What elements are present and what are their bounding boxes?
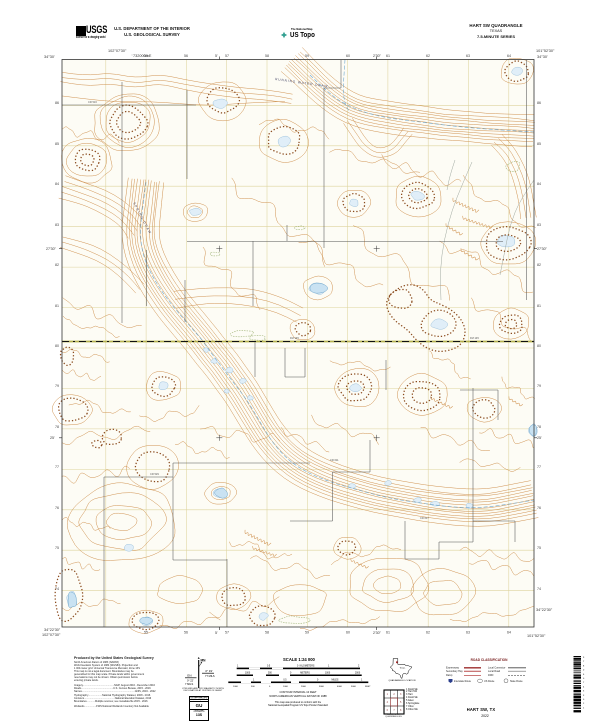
svg-text:75: 75 [55, 546, 59, 550]
svg-text:4000: 4000 [337, 686, 343, 688]
svg-text:5: 5 [583, 691, 585, 693]
svg-text:MILES: MILES [332, 680, 339, 682]
svg-text:FM 145: FM 145 [470, 336, 479, 340]
svg-text:KILOMETERS: KILOMETERS [300, 665, 315, 667]
svg-text:83: 83 [537, 223, 541, 227]
svg-text:76: 76 [537, 506, 541, 510]
svg-text:0° 22': 0° 22' [187, 679, 194, 683]
svg-text:State Route: State Route [510, 680, 523, 683]
svg-text:27'30": 27'30" [537, 247, 548, 251]
svg-text:76: 76 [55, 506, 59, 510]
svg-text:78: 78 [537, 425, 541, 429]
svg-text:Secondary Hwy: Secondary Hwy [446, 670, 464, 673]
svg-text:61: 61 [386, 631, 390, 635]
svg-text:CR 611: CR 611 [330, 458, 339, 462]
svg-text:2000: 2000 [355, 673, 361, 675]
svg-text:0: 0 [317, 680, 319, 682]
svg-text:77: 77 [537, 465, 541, 469]
svg-text:500: 500 [251, 686, 255, 688]
svg-text:MN: MN [201, 659, 207, 663]
svg-text:1: 1 [361, 680, 363, 682]
svg-text:63: 63 [466, 54, 470, 58]
svg-text:60: 60 [346, 631, 350, 635]
svg-text:83: 83 [55, 223, 59, 227]
svg-text:74: 74 [55, 587, 59, 591]
svg-text:0.5: 0.5 [267, 665, 271, 667]
svg-text:METERS: METERS [300, 673, 310, 675]
svg-text:3: 3 [583, 695, 585, 697]
svg-text:2: 2 [583, 703, 585, 705]
svg-text:FEET: FEET [365, 686, 371, 688]
svg-text:64: 64 [507, 54, 511, 58]
svg-text:74: 74 [537, 587, 541, 591]
svg-text:59: 59 [305, 631, 309, 635]
svg-text:1000: 1000 [325, 673, 331, 675]
svg-text:GN: GN [187, 674, 192, 678]
svg-text:7: 7 [583, 682, 585, 684]
svg-text:2000: 2000 [301, 686, 307, 688]
svg-text:59: 59 [305, 54, 309, 58]
svg-text:81: 81 [55, 304, 59, 308]
svg-text:27'30": 27'30" [46, 247, 57, 251]
svg-text:2'30": 2'30" [373, 54, 382, 58]
svg-text:25': 25' [537, 436, 542, 440]
svg-text:62: 62 [426, 631, 430, 635]
svg-text:6: 6 [583, 674, 585, 676]
svg-text:1000: 1000 [245, 673, 251, 675]
svg-text:56: 56 [184, 54, 188, 58]
svg-text:FM 145: FM 145 [290, 336, 299, 340]
svg-text:61: 61 [386, 54, 390, 58]
svg-text:77 MILS: 77 MILS [205, 674, 215, 678]
svg-text:0: 0 [269, 686, 271, 688]
svg-text:Interstate Route: Interstate Route [454, 680, 472, 683]
svg-text:57: 57 [225, 631, 229, 635]
svg-text:1000: 1000 [283, 686, 289, 688]
svg-text:34°22'30": 34°22'30" [44, 628, 61, 632]
svg-text:1000: 1000 [233, 686, 239, 688]
svg-text:7: 7 [583, 661, 585, 663]
svg-text:80: 80 [537, 344, 541, 348]
svg-text:3000: 3000 [319, 686, 325, 688]
svg-text:85: 85 [537, 142, 541, 146]
svg-text:0.5: 0.5 [283, 680, 287, 682]
svg-text:84: 84 [537, 182, 541, 186]
svg-text:80: 80 [55, 344, 59, 348]
svg-text:1: 1 [237, 665, 239, 667]
svg-text:84: 84 [55, 182, 59, 186]
svg-text:US Route: US Route [484, 680, 495, 683]
svg-text:102°07'30": 102°07'30" [42, 633, 61, 637]
svg-text:1: 1 [328, 665, 330, 667]
svg-text:75: 75 [537, 546, 541, 550]
svg-text:34°30': 34°30' [44, 55, 55, 59]
svg-text:102°07'30": 102°07'30" [108, 49, 127, 53]
svg-text:4: 4 [583, 686, 585, 688]
svg-text:4WD: 4WD [488, 674, 494, 677]
svg-text:86: 86 [537, 101, 541, 105]
svg-text:60: 60 [346, 54, 350, 58]
svg-text:4° 19': 4° 19' [205, 669, 213, 673]
svg-text:0: 0 [290, 673, 292, 675]
svg-text:55: 55 [144, 631, 148, 635]
svg-text:64: 64 [507, 631, 511, 635]
svg-text:5': 5' [215, 54, 218, 58]
svg-text:8: 8 [583, 665, 585, 667]
svg-text:86: 86 [55, 101, 59, 105]
svg-text:34°22'30": 34°22'30" [536, 608, 553, 612]
svg-text:34°30': 34°30' [537, 55, 548, 59]
svg-text:58: 58 [265, 631, 269, 635]
svg-text:78: 78 [55, 425, 59, 429]
svg-text:101°52'30": 101°52'30" [536, 49, 555, 53]
svg-text:2: 2 [358, 665, 360, 667]
svg-text:1: 1 [253, 680, 255, 682]
svg-text:62: 62 [426, 54, 430, 58]
svg-text:58: 58 [265, 54, 269, 58]
svg-text:9: 9 [583, 657, 585, 659]
svg-text:57: 57 [225, 54, 229, 58]
svg-text:1: 1 [583, 707, 585, 709]
svg-text:CR 529: CR 529 [150, 472, 159, 476]
svg-text:25': 25' [50, 436, 55, 440]
svg-text:⁻732000mE: ⁻732000mE [131, 54, 152, 58]
svg-text:0: 0 [583, 699, 585, 701]
svg-text:82: 82 [537, 263, 541, 267]
svg-text:79: 79 [55, 384, 59, 388]
svg-text:5': 5' [215, 631, 218, 635]
svg-text:82: 82 [55, 263, 59, 267]
svg-text:2'30": 2'30" [373, 631, 382, 635]
svg-text:7 MILS: 7 MILS [185, 682, 193, 686]
svg-text:85: 85 [55, 142, 59, 146]
svg-text:5000: 5000 [351, 686, 357, 688]
svg-text:CR 516: CR 516 [88, 100, 97, 104]
svg-text:79: 79 [537, 384, 541, 388]
svg-text:0: 0 [583, 670, 585, 672]
svg-text:Ramp: Ramp [446, 674, 453, 677]
svg-text:81: 81 [537, 304, 541, 308]
svg-text:101°52'30": 101°52'30" [527, 634, 546, 638]
svg-text:Local Road: Local Road [488, 670, 501, 673]
svg-text:0: 0 [583, 678, 585, 680]
svg-text:63: 63 [466, 631, 470, 635]
svg-text:77: 77 [55, 465, 59, 469]
svg-text:500: 500 [268, 673, 273, 675]
svg-text:Texas: Texas [400, 668, 407, 670]
svg-text:CR 617: CR 617 [420, 516, 429, 520]
svg-text:56: 56 [184, 631, 188, 635]
